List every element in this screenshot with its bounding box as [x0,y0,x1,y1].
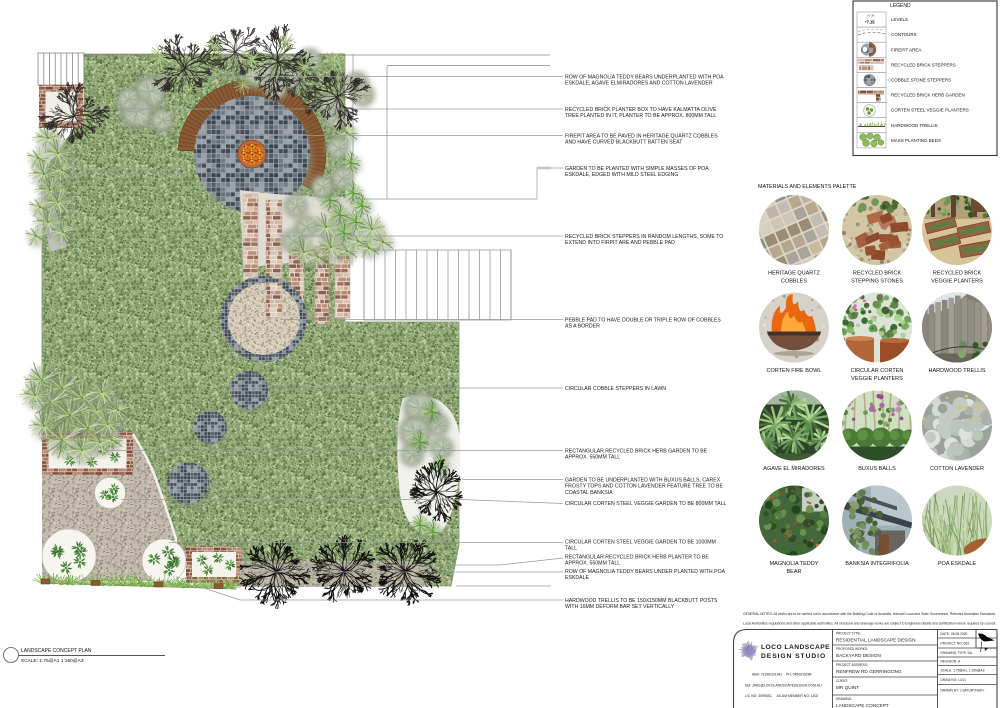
svg-text:RENFREW RD GERRINGONG: RENFREW RD GERRINGONG [836,669,902,674]
svg-text:HERITAGE QUARTZ: HERITAGE QUARTZ [768,271,820,277]
svg-text:DRAWN BY: J.SATURYNSKY: DRAWN BY: J.SATURYNSKY [941,688,986,692]
svg-text:TALL: TALL [565,546,577,552]
svg-text:HARDWOOD TRELLIS: HARDWOOD TRELLIS [928,368,985,374]
svg-text:FIREPIT AREA TO BE PAVED IN HE: FIREPIT AREA TO BE PAVED IN HERITAGE QUA… [565,133,718,139]
svg-text:PROJECT ADDRESS:: PROJECT ADDRESS: [836,663,868,667]
svg-text:GARDEN TO BE UNDERPLANTED WITH: GARDEN TO BE UNDERPLANTED WITH BUXUS BAL… [565,477,721,483]
svg-text:+6.38: +6.38 [867,14,875,18]
svg-text:AGAVE EL MIRADORES: AGAVE EL MIRADORES [763,466,825,472]
svg-text:VEGGIE PLANTERS: VEGGIE PLANTERS [931,279,983,285]
svg-text:CIRCULAR COBBLE STEPPERS IN LA: CIRCULAR COBBLE STEPPERS IN LAWN [565,386,666,392]
svg-text:DRAW NO: LC01: DRAW NO: LC01 [941,678,967,682]
svg-text:ESKDALE, AGAVE ELMIRADORES AND: ESKDALE, AGAVE ELMIRADORES AND COTTON LA… [565,81,713,87]
svg-text:CORTEN FIRE BOWL: CORTEN FIRE BOWL [767,368,822,374]
svg-text:HARDWOOD TRELLIS TO BE 150X150: HARDWOOD TRELLIS TO BE 150X150MM BLACKBU… [565,598,718,604]
svg-text:ESKDALE, EDGED WITH MILD STEEL: ESKDALE, EDGED WITH MILD STEEL EDGING [565,172,678,178]
svg-text:HARDWOOD TRELLIS: HARDWOOD TRELLIS [891,123,938,128]
svg-text:LEGEND: LEGEND [890,3,911,9]
svg-text:VEGGIE PLANTERS: VEGGIE PLANTERS [851,376,903,382]
svg-text:PEBBLE PAD TO HAVE DOUBLE OR T: PEBBLE PAD TO HAVE DOUBLE OR TRIPLE ROW … [565,317,721,323]
svg-text:LEVELS: LEVELS [891,17,908,22]
svg-text:PROPOSED WORKS:: PROPOSED WORKS: [836,647,868,651]
svg-text:PROJECT NO: 063: PROJECT NO: 063 [941,641,970,645]
svg-text:RECYCLED BRICK STEPPERS: RECYCLED BRICK STEPPERS [891,62,956,67]
svg-text:LANDSCAPE CONCEPT PLAN: LANDSCAPE CONCEPT PLAN [21,648,92,654]
svg-text:MATERIALS AND ELEMENTS PALETTE: MATERIALS AND ELEMENTS PALETTE [758,184,857,190]
svg-text:CLIENT:: CLIENT: [836,679,848,683]
svg-text:POA ESKDALE: POA ESKDALE [938,561,977,567]
svg-text:RESIDENTIAL LANDSCAPE DESIGN: RESIDENTIAL LANDSCAPE DESIGN [836,638,916,643]
svg-text:BEAR: BEAR [787,569,802,575]
svg-text:MAGNOLIA TEDDY: MAGNOLIA TEDDY [770,561,819,567]
svg-text:Local Authorities regulations: Local Authorities regulations and other … [743,622,996,626]
svg-text:WITH 16MM DEFORM BAR SET VERTI: WITH 16MM DEFORM BAR SET VERTICALLY [565,604,675,610]
svg-text:DESIGN STUDIO: DESIGN STUDIO [761,653,826,660]
svg-text:APPROX. 550MM TALL: APPROX. 550MM TALL [565,561,620,567]
svg-text:TREE PLANTED IN IT, PLANTER TO: TREE PLANTED IN IT, PLANTER TO BE APPROX… [565,113,716,119]
svg-text:DRAWING:: DRAWING: [836,697,852,701]
svg-text:SCALE: 1:75@A1, 1:150@A3: SCALE: 1:75@A1, 1:150@A3 [941,668,985,672]
svg-text:EM: JAKE@LOCOLANDSCAPEDESIGN.C: EM: JAKE@LOCOLANDSCAPEDESIGN.COM.AU [745,684,822,688]
svg-text:RECYCLED BRICK: RECYCLED BRICK [933,271,982,277]
svg-text:ESKDALE: ESKDALE [565,575,589,581]
svg-text:LIC NO: 309953C AILDM MEMB: LIC NO: 309953C AILDM MEMBER NO: 1402 [745,694,818,698]
svg-text:CIRCULAR CORTEN STEEL VEGGIE G: CIRCULAR CORTEN STEEL VEGGIE GARDEN TO B… [565,539,716,545]
svg-text:PROJECT TYPE:: PROJECT TYPE: [836,632,861,636]
svg-text:ABN: 7119619/1941 PH: 04508: ABN: 7119619/1941 PH: 0450815284 [752,673,812,677]
svg-text:RECYCLED BRICK HERB GARDEN: RECYCLED BRICK HERB GARDEN [891,93,965,98]
svg-text:RECTANGULAR RECYCLED BRICK HER: RECTANGULAR RECYCLED BRICK HERB PLANTER … [565,554,709,560]
svg-text:ROW OF MAGNOLIA TEDDY BEARS UN: ROW OF MAGNOLIA TEDDY BEARS UNDER PLANTE… [565,569,726,575]
svg-text:BACKYARD DESIGN: BACKYARD DESIGN [836,653,881,658]
svg-text:APPROX. 550MM TALL: APPROX. 550MM TALL [565,455,620,461]
svg-text:RECYCLED BRICK PLANTER BOX TO: RECYCLED BRICK PLANTER BOX TO HAVE KALMA… [565,107,717,113]
svg-text:RECYCLED BRICK STEPPERS IN RAN: RECYCLED BRICK STEPPERS IN RANDOM LENGTH… [565,234,723,240]
svg-text:DRAWING TYPE: DA: DRAWING TYPE: DA [941,651,973,655]
svg-text:AS A BORDER: AS A BORDER [565,324,600,330]
svg-text:COBBLE STONE STEPPERS: COBBLE STONE STEPPERS [891,78,951,83]
svg-text:REVISION: A: REVISION: A [941,660,961,664]
svg-text:COTTON LAVENDER: COTTON LAVENDER [930,466,984,472]
svg-text:BANKSIA INTEGRIFOLIA: BANKSIA INTEGRIFOLIA [845,561,909,567]
svg-text:LANDSCAPE CONCEPT: LANDSCAPE CONCEPT [836,703,889,708]
svg-text:AND HAVE CURVED BLACKBUTT BATT: AND HAVE CURVED BLACKBUTT BATTEN SEAT [565,140,683,146]
svg-text:CIRCULAR CORTEN STEEL VEGGIE G: CIRCULAR CORTEN STEEL VEGGIE GARDEN TO B… [565,501,726,507]
svg-text:CIRCULAR CORTEN: CIRCULAR CORTEN [851,368,904,374]
svg-text:GARDEN TO BE PLANTED WITH SIMP: GARDEN TO BE PLANTED WITH SIMPLE MASSES … [565,166,709,172]
svg-text:LOCO LANDSCAPE: LOCO LANDSCAPE [761,644,830,651]
svg-text:SCALE: 1:75@A1 1:150@A3: SCALE: 1:75@A1 1:150@A3 [21,658,84,664]
svg-text:FIREPIT AREA: FIREPIT AREA [891,47,921,52]
svg-text:STEPPING STONES: STEPPING STONES [851,279,903,285]
svg-text:RECTANGULAR RECYCLED BRICK HER: RECTANGULAR RECYCLED BRICK HERB GARDEN T… [565,448,708,454]
svg-text:DATE: 08.08.2020: DATE: 08.08.2020 [941,632,968,636]
svg-text:FROSTY TOPS AND COTTON LAVENDE: FROSTY TOPS AND COTTON LAVENDER FEATURE … [565,484,724,490]
svg-text:RECYCLED BRICK: RECYCLED BRICK [853,271,902,277]
svg-text:ROW OF MAGNOLIA TEDDY BEARS UN: ROW OF MAGNOLIA TEDDY BEARS UNDERPLANTED… [565,74,724,80]
svg-text:CORTEN STEEL VEGGIE PLANTERS: CORTEN STEEL VEGGIE PLANTERS [891,108,969,113]
svg-text:MR QUINT: MR QUINT [836,685,859,690]
svg-text:COASTAL BANKSIA: COASTAL BANKSIA [565,490,613,496]
svg-text:•7.15: •7.15 [865,20,875,25]
svg-text:GENERAL NOTES: All works are t: GENERAL NOTES: All works are to be carri… [743,612,996,616]
svg-text:EXTEND INTO FIRPIT ARE AND PEB: EXTEND INTO FIRPIT ARE AND PEBBLE PAD [565,240,675,246]
svg-text:BUXUS BALLS: BUXUS BALLS [858,466,896,472]
svg-text:CONTOURS: CONTOURS [891,32,917,37]
svg-text:COBBLES: COBBLES [781,279,807,285]
svg-text:MASS PLANTING BEDS: MASS PLANTING BEDS [891,138,941,143]
